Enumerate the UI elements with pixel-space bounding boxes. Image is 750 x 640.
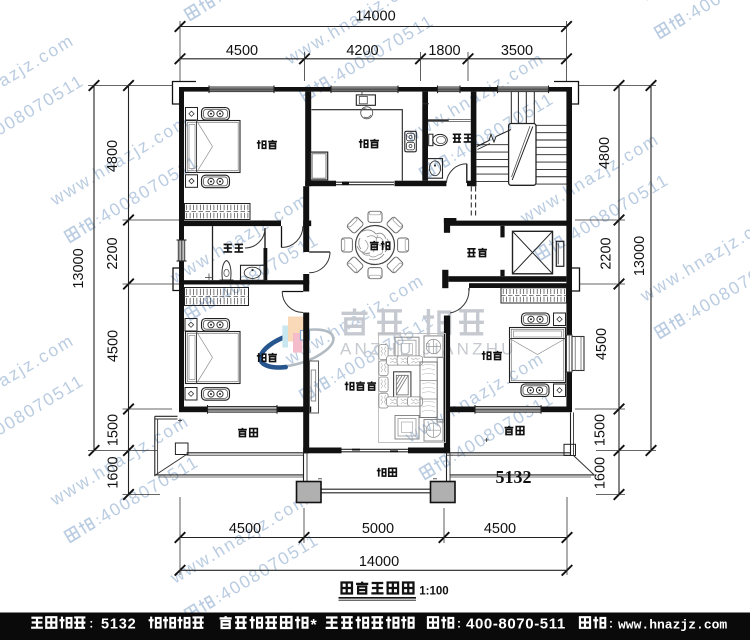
svg-text:14000: 14000 [355,9,395,25]
svg-text:4500: 4500 [484,521,516,537]
svg-text:14000: 14000 [359,554,399,570]
svg-text:2200: 2200 [105,237,121,269]
svg-text:4500: 4500 [226,43,258,59]
svg-text:1600: 1600 [593,457,609,489]
svg-text:5132: 5132 [101,617,136,633]
svg-text:4008070511: 4008070511 [216,0,322,4]
svg-text:4200: 4200 [346,43,378,59]
svg-text:1800: 1800 [428,43,460,59]
svg-text:3500: 3500 [501,43,533,59]
svg-text:www.hnazjz.com: www.hnazjz.com [618,618,727,633]
svg-text:4008070511: 4008070511 [686,0,750,22]
svg-text:4800: 4800 [105,140,121,172]
svg-text:1500: 1500 [593,414,609,446]
svg-text:2200: 2200 [599,237,615,269]
svg-text:5132: 5132 [496,467,532,487]
svg-text:4500: 4500 [106,330,122,362]
svg-text:1:100: 1:100 [419,586,448,598]
svg-text:1500: 1500 [106,414,122,446]
svg-text:400-8070-511: 400-8070-511 [466,616,566,633]
svg-text:4800: 4800 [597,137,613,169]
svg-text:4500: 4500 [594,328,610,360]
svg-text:4500: 4500 [229,521,261,537]
svg-text:13000: 13000 [71,248,87,288]
svg-text:13000: 13000 [632,236,648,276]
svg-text:5000: 5000 [362,521,394,537]
svg-text:1600: 1600 [106,456,122,488]
svg-text:*: * [311,617,318,634]
